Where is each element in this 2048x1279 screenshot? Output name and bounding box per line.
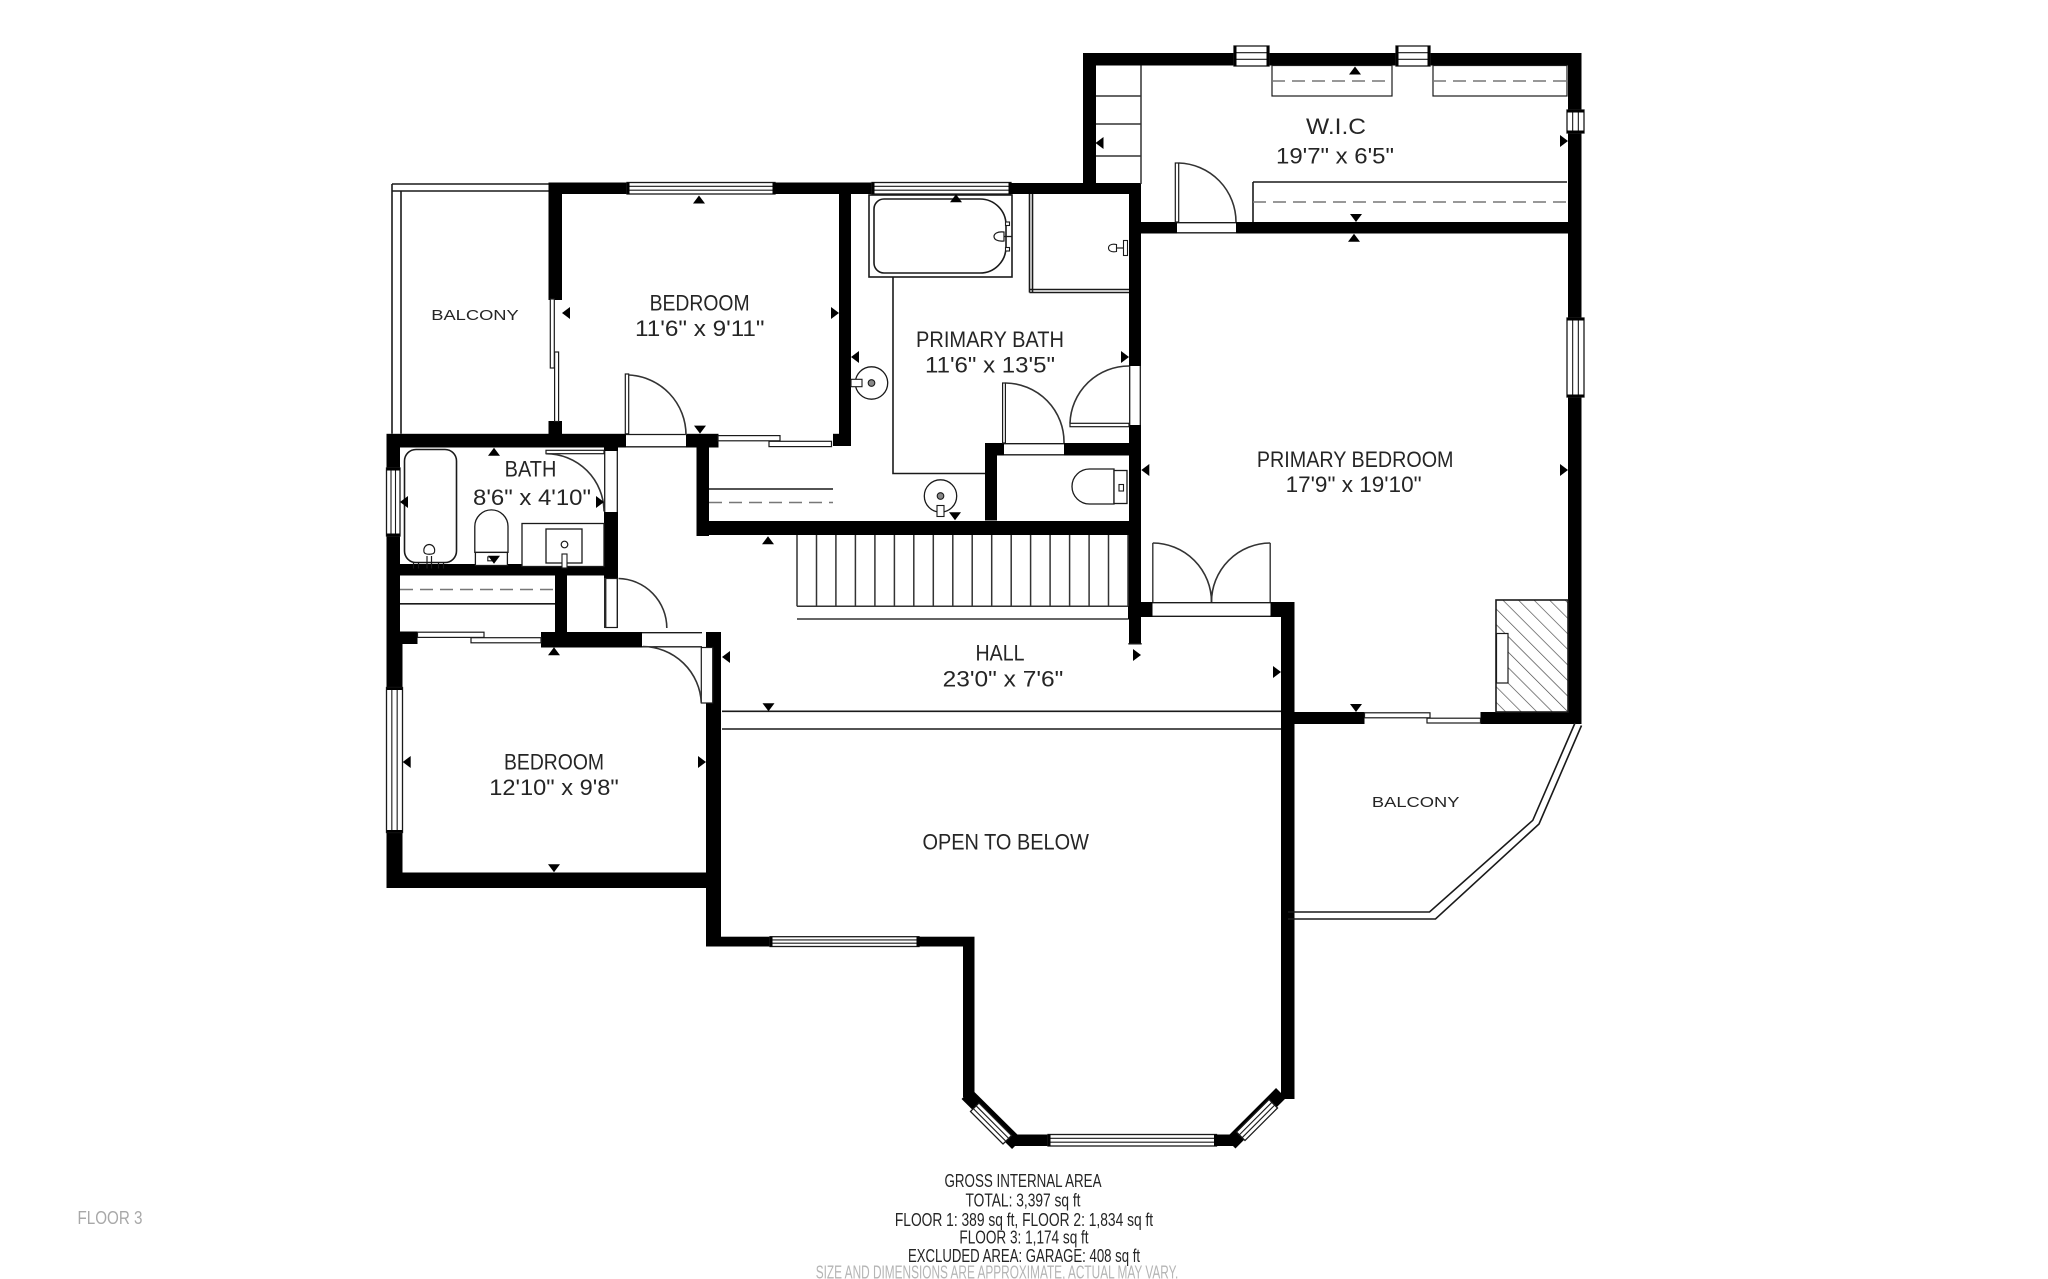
svg-text:SIZE AND DIMENSIONS ARE APPROX: SIZE AND DIMENSIONS ARE APPROXIMATE, ACT… xyxy=(816,1263,1179,1279)
svg-text:HALL: HALL xyxy=(976,640,1025,665)
svg-text:12'10" x 9'8": 12'10" x 9'8" xyxy=(489,775,618,800)
svg-text:23'0" x 7'6": 23'0" x 7'6" xyxy=(943,666,1064,691)
svg-text:17'9" x 19'10": 17'9" x 19'10" xyxy=(1286,472,1422,497)
svg-text:8'6" x 4'10": 8'6" x 4'10" xyxy=(473,485,591,510)
svg-text:OPEN TO BELOW: OPEN TO BELOW xyxy=(922,830,1089,855)
svg-text:FLOOR 3: 1,174 sq ft: FLOOR 3: 1,174 sq ft xyxy=(959,1228,1088,1248)
svg-text:BALCONY: BALCONY xyxy=(431,307,519,324)
svg-text:PRIMARY BEDROOM: PRIMARY BEDROOM xyxy=(1257,447,1454,472)
svg-text:BEDROOM: BEDROOM xyxy=(650,291,750,316)
svg-text:GROSS INTERNAL AREA: GROSS INTERNAL AREA xyxy=(945,1171,1102,1191)
svg-text:11'6" x 9'11": 11'6" x 9'11" xyxy=(635,316,765,341)
svg-text:BALCONY: BALCONY xyxy=(1372,794,1460,811)
svg-text:TOTAL: 3,397 sq ft: TOTAL: 3,397 sq ft xyxy=(966,1191,1081,1211)
svg-text:BATH: BATH xyxy=(505,457,557,482)
svg-text:W.I.C: W.I.C xyxy=(1306,114,1366,139)
svg-text:PRIMARY BATH: PRIMARY BATH xyxy=(916,327,1064,352)
svg-text:11'6" x 13'5": 11'6" x 13'5" xyxy=(925,352,1055,377)
svg-text:FLOOR 3: FLOOR 3 xyxy=(78,1208,143,1228)
svg-text:19'7" x 6'5": 19'7" x 6'5" xyxy=(1276,144,1394,169)
svg-text:BEDROOM: BEDROOM xyxy=(504,749,604,774)
